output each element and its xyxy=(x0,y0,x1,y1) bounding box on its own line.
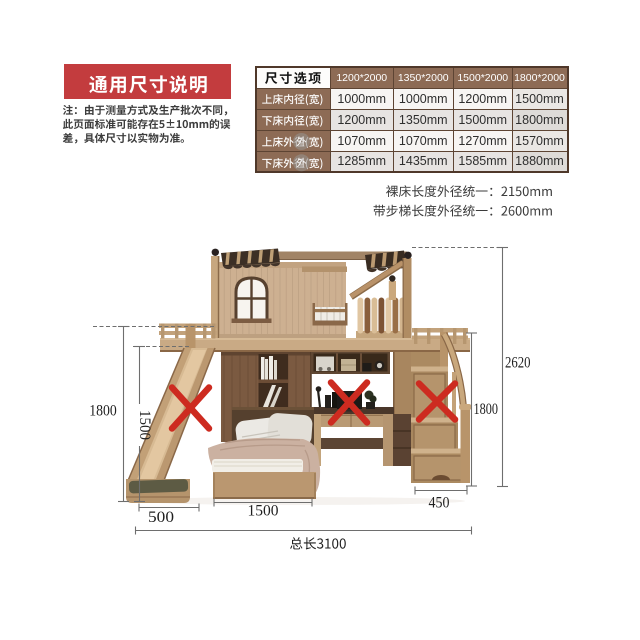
svg-text:1500: 1500 xyxy=(248,503,279,520)
svg-text:450: 450 xyxy=(429,495,450,512)
svg-text:500: 500 xyxy=(148,509,174,526)
svg-text:1800: 1800 xyxy=(89,403,117,420)
svg-text:2620: 2620 xyxy=(505,355,531,372)
svg-text:1800: 1800 xyxy=(474,401,499,418)
svg-text:1500: 1500 xyxy=(136,410,153,440)
